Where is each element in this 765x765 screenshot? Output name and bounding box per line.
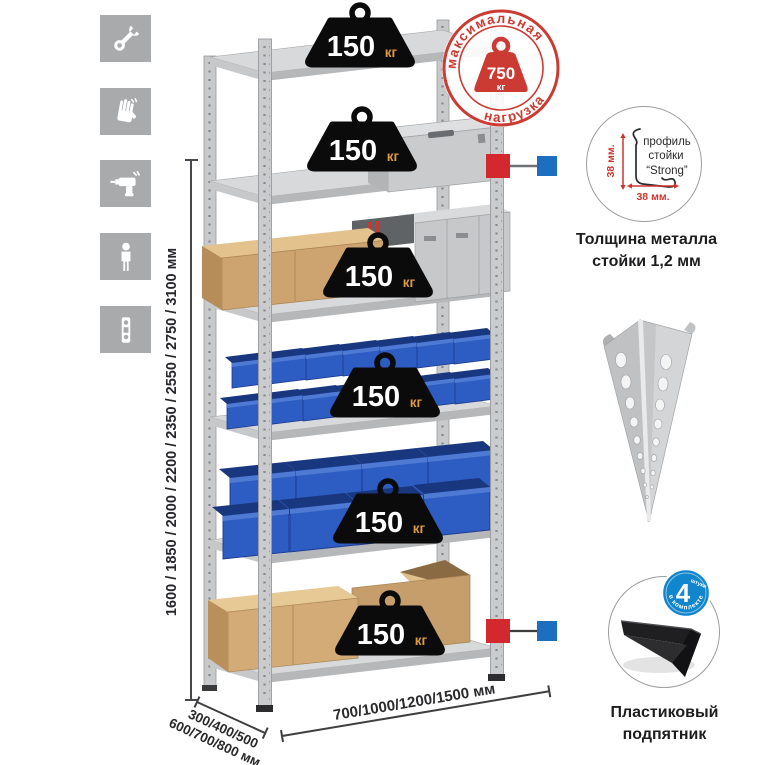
foot-caption: Пластиковый подпятник [577, 702, 752, 745]
profile-dim-horizontal: 38 мм. [636, 191, 669, 203]
kit-count-badge: 4 штуки в комплекте [660, 567, 712, 619]
stamp-unit: кг [497, 82, 506, 93]
profile-dim-vertical: 38 мм. [605, 144, 617, 177]
corner-post-image [592, 296, 720, 534]
max-load-stamp: максимальная нагрузка 750 кг [431, 0, 570, 139]
callout-marker-red [486, 154, 510, 178]
svg-text:кг: кг [415, 633, 428, 648]
svg-text:150: 150 [357, 619, 405, 651]
svg-text:150: 150 [355, 507, 403, 539]
svg-text:150: 150 [345, 261, 393, 293]
callout-marker-blue [537, 156, 557, 176]
foot-caption-line2: подпятник [577, 724, 752, 746]
width-dimension: 700/1000/1200/1500 мм [279, 672, 551, 742]
gloves-icon [100, 88, 151, 135]
profile-label-line2: стойки [648, 150, 683, 162]
svg-text:150: 150 [327, 31, 375, 63]
wrench-icon [100, 15, 151, 62]
stamp-value: 750 [487, 64, 515, 83]
callout-marker-red [486, 619, 510, 643]
callout-marker-blue [537, 621, 557, 641]
foot-callout-connector [486, 619, 557, 643]
drill-icon [100, 160, 151, 207]
profile-caption-line2: стойки 1,2 мм [564, 251, 729, 273]
profile-caption-line1: Толщина металла [564, 229, 729, 251]
width-label: 700/1000/1200/1500 мм [332, 680, 497, 724]
profile-caption: Толщина металла стойки 1,2 мм [564, 229, 729, 272]
page-root: 1600 / 1850 / 2000 / 2200 / 2350 / 2550 … [0, 0, 765, 765]
profile-callout-connector [486, 154, 557, 178]
shelf-load-weight: 150 кг [308, 5, 413, 65]
svg-text:150: 150 [352, 381, 400, 413]
profile-label-line1: профиль [643, 136, 691, 148]
shelf-load-weight: 150 кг [310, 109, 415, 169]
profile-dim-horizontal-line [627, 183, 679, 188]
foot-caption-line1: Пластиковый [577, 702, 752, 724]
svg-text:150: 150 [329, 135, 377, 167]
height-dimension: 1600 / 1850 / 2000 / 2200 / 2350 / 2550 … [164, 160, 198, 700]
profile-label-line3: “Strong” [646, 165, 688, 177]
svg-text:кг: кг [410, 395, 423, 410]
level-icon [100, 306, 151, 353]
height-dimension-label: 1600 / 1850 / 2000 / 2200 / 2350 / 2550 … [164, 248, 180, 616]
svg-text:кг: кг [387, 149, 400, 164]
svg-text:кг: кг [413, 521, 426, 536]
profile-dim-vertical-line [620, 133, 625, 190]
svg-text:кг: кг [385, 45, 398, 60]
svg-text:кг: кг [403, 275, 416, 290]
post-profile-detail-circle: 38 мм. 38 мм. профиль стойки “Strong” [586, 106, 702, 222]
person-height-icon [100, 233, 151, 280]
